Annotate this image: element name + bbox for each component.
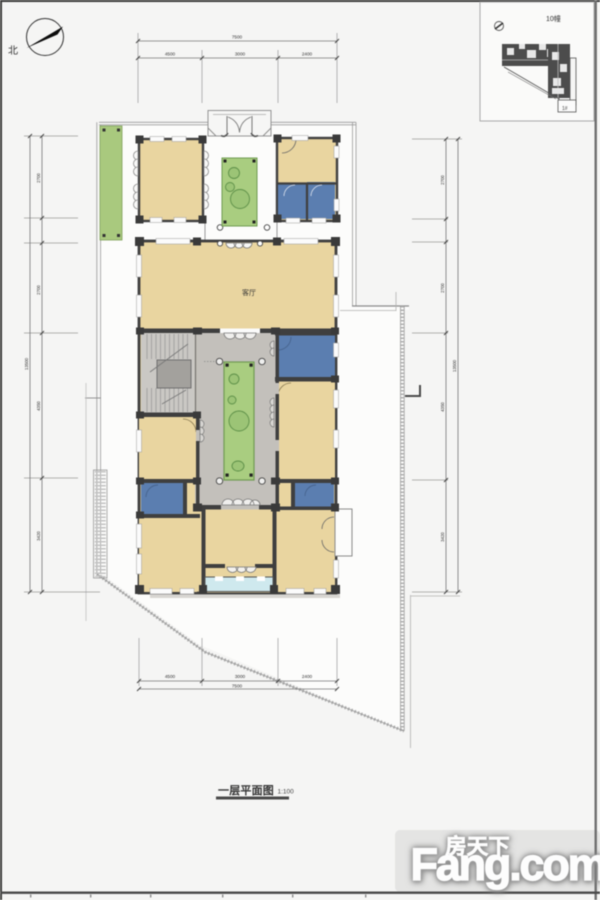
svg-text:2700: 2700	[36, 285, 41, 295]
svg-text:3000: 3000	[235, 674, 246, 679]
svg-text:客厅: 客厅	[242, 288, 256, 297]
svg-text:2700: 2700	[440, 175, 445, 185]
svg-text:3420: 3420	[36, 531, 41, 541]
svg-text:13500: 13500	[24, 357, 29, 370]
svg-text:2700: 2700	[36, 173, 41, 183]
svg-text:4500: 4500	[165, 674, 176, 679]
svg-text:2400: 2400	[302, 674, 313, 679]
svg-text:13500: 13500	[452, 359, 457, 372]
svg-text:2700: 2700	[440, 283, 445, 293]
svg-text:3420: 3420	[440, 532, 445, 542]
svg-text:北: 北	[8, 45, 18, 57]
svg-text:4500: 4500	[165, 52, 176, 57]
svg-text:1:100: 1:100	[278, 789, 295, 796]
svg-text:4350: 4350	[36, 401, 41, 411]
svg-text:一层平面图: 一层平面图	[218, 784, 274, 797]
svg-text:3000: 3000	[235, 52, 246, 57]
svg-text:2400: 2400	[302, 52, 313, 57]
svg-text:7500: 7500	[232, 684, 243, 689]
svg-text:4350: 4350	[440, 402, 445, 412]
svg-text:房天下: 房天下	[446, 835, 511, 859]
svg-text:10幢: 10幢	[546, 14, 561, 23]
svg-text:7500: 7500	[232, 35, 243, 40]
svg-text:1#: 1#	[562, 106, 568, 112]
